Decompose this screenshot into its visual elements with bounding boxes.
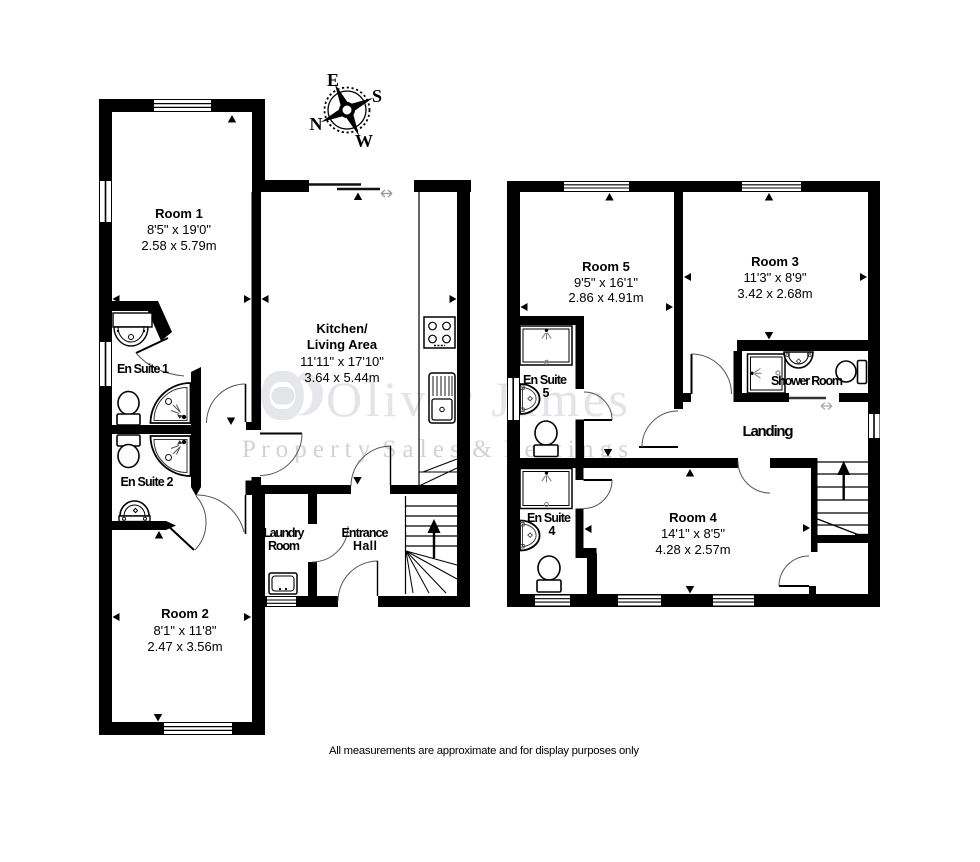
svg-text:2.86 x 4.91m: 2.86 x 4.91m xyxy=(568,290,643,305)
svg-text:Room 1: Room 1 xyxy=(155,206,203,221)
svg-text:Room 5: Room 5 xyxy=(582,259,630,274)
svg-text:3.64 x 5.44m: 3.64 x 5.44m xyxy=(304,370,379,385)
svg-text:Room 3: Room 3 xyxy=(751,254,799,269)
svg-text:11'11" x 17'10": 11'11" x 17'10" xyxy=(300,354,384,369)
svg-text:5: 5 xyxy=(543,386,550,400)
svg-text:S: S xyxy=(372,86,382,106)
svg-text:Laundry: Laundry xyxy=(264,526,305,540)
svg-text:4.28 x 2.57m: 4.28 x 2.57m xyxy=(655,542,730,557)
svg-text:E: E xyxy=(327,70,339,90)
svg-text:Room 2: Room 2 xyxy=(161,606,209,621)
svg-text:Living Area: Living Area xyxy=(307,337,378,352)
svg-text:W: W xyxy=(355,131,373,151)
svg-text:11'3" x 8'9": 11'3" x 8'9" xyxy=(743,270,806,285)
svg-text:9'5" x 16'1": 9'5" x 16'1" xyxy=(574,275,638,290)
svg-text:En Suite 2: En Suite 2 xyxy=(121,475,174,489)
svg-text:En Suite: En Suite xyxy=(527,511,571,525)
svg-text:2.58 x 5.79m: 2.58 x 5.79m xyxy=(141,238,216,253)
svg-text:3.42 x 2.68m: 3.42 x 2.68m xyxy=(737,286,812,301)
svg-text:Shower Room: Shower Room xyxy=(771,374,843,388)
svg-text:Room: Room xyxy=(268,539,300,553)
svg-text:Entrance: Entrance xyxy=(342,526,389,540)
svg-text:2.47 x 3.56m: 2.47 x 3.56m xyxy=(147,639,222,654)
svg-text:Hall: Hall xyxy=(353,539,377,553)
svg-text:Kitchen/: Kitchen/ xyxy=(316,321,368,336)
svg-text:Landing: Landing xyxy=(743,423,794,440)
svg-text:En Suite 1: En Suite 1 xyxy=(117,362,169,376)
svg-text:N: N xyxy=(310,114,323,134)
svg-text:En Suite: En Suite xyxy=(523,373,567,387)
svg-text:4: 4 xyxy=(549,524,556,538)
svg-text:Room 4: Room 4 xyxy=(669,510,717,525)
svg-text:14'1" x 8'5": 14'1" x 8'5" xyxy=(661,526,725,541)
svg-text:8'5" x 19'0": 8'5" x 19'0" xyxy=(147,222,211,237)
svg-text:All measurements are approxima: All measurements are approximate and for… xyxy=(329,745,639,757)
svg-text:8'1" x 11'8": 8'1" x 11'8" xyxy=(153,623,216,638)
